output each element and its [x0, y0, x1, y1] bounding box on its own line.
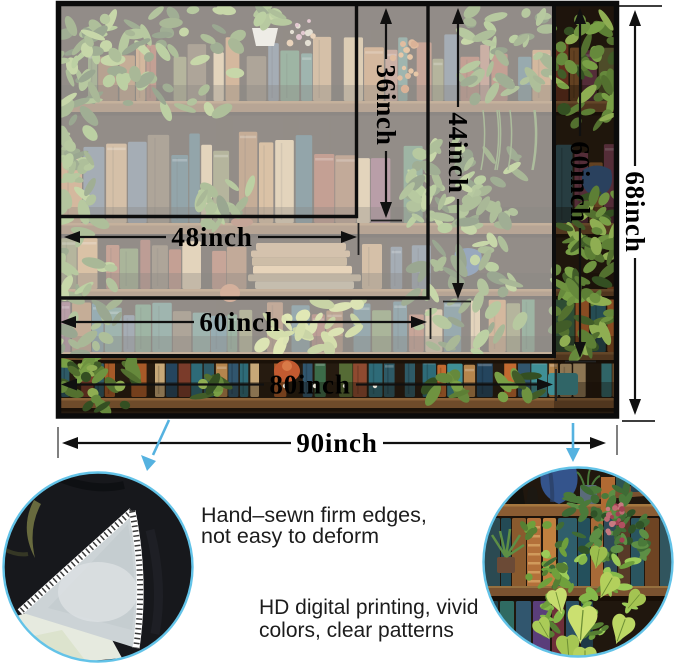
- svg-text:48inch: 48inch: [171, 222, 252, 252]
- svg-text:36inch: 36inch: [371, 64, 401, 145]
- svg-text:44inch: 44inch: [443, 112, 473, 193]
- svg-text:90inch: 90inch: [296, 428, 377, 458]
- svg-text:68inch: 68inch: [620, 171, 650, 252]
- svg-text:60inch: 60inch: [565, 141, 595, 222]
- svg-text:80inch: 80inch: [269, 370, 350, 400]
- svg-text:60inch: 60inch: [199, 307, 280, 337]
